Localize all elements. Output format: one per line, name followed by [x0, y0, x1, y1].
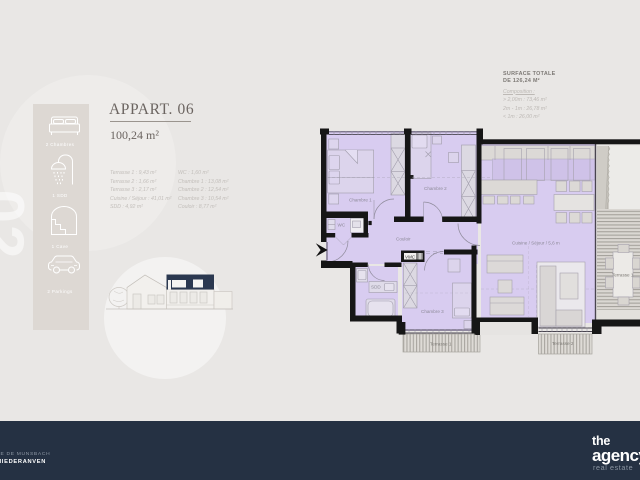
svg-text:Chambre 2: Chambre 2	[424, 186, 447, 191]
svg-text:SDD: SDD	[371, 285, 381, 290]
svg-text:Terrasse 2: Terrasse 2	[552, 341, 574, 346]
svg-text:WC: WC	[338, 223, 346, 228]
svg-text:Terrasse 1: Terrasse 1	[430, 342, 452, 347]
svg-text:VMC: VMC	[405, 255, 416, 260]
svg-text:Couloir: Couloir	[396, 237, 411, 242]
svg-text:Cuisine / Séjour / 5,6 m: Cuisine / Séjour / 5,6 m	[512, 241, 560, 246]
svg-text:Terrasse 1: Terrasse 1	[612, 273, 634, 278]
svg-text:Chambre 3: Chambre 3	[421, 309, 444, 314]
svg-text:Chambre 1: Chambre 1	[349, 198, 372, 203]
